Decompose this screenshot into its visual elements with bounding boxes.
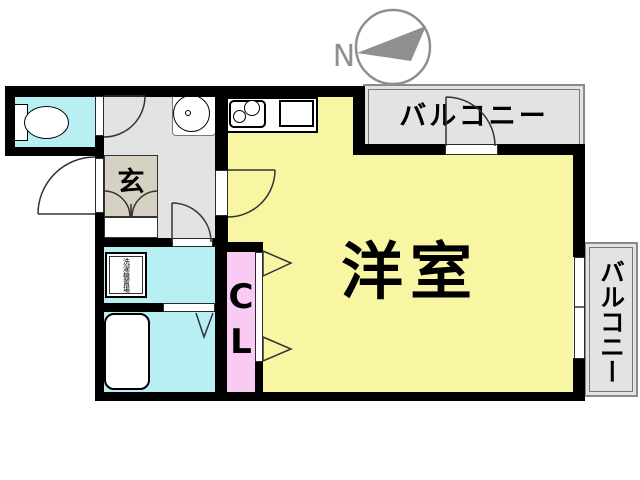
- entrance-step: [104, 217, 158, 238]
- wall-segment: [215, 247, 227, 392]
- wall-segment: [255, 362, 263, 392]
- closet-label-c: C: [227, 280, 255, 314]
- kitchen-sink-icon: [279, 100, 314, 127]
- balcony-door-opening: [445, 144, 498, 155]
- stove-burner-icon: [233, 110, 246, 123]
- stove-burner-icon: [244, 100, 260, 116]
- compass-north-label: N: [330, 40, 358, 74]
- closet-label-l: L: [227, 325, 255, 359]
- washing-machine-icon: 洗濯機置場: [105, 252, 147, 298]
- bathroom-door-opening: [163, 303, 215, 312]
- wall-segment: [5, 86, 364, 97]
- wall-segment: [5, 86, 15, 156]
- entrance-label: 玄: [104, 155, 158, 209]
- wall-segment: [498, 144, 585, 155]
- room-door-opening: [215, 170, 228, 216]
- wall-segment: [104, 238, 172, 247]
- balcony-right-label: バルコニー: [596, 246, 626, 396]
- washbasin-faucet-icon: [185, 110, 191, 116]
- floor-plan: 洗濯機置場 玄 洋室 C L バルコニー バルコニー N: [0, 0, 640, 480]
- washbasin-icon: [173, 95, 210, 132]
- wall-segment: [95, 213, 104, 247]
- washing-machine-label: 洗濯機置場: [123, 258, 130, 293]
- wall-segment: [363, 144, 445, 155]
- bathtub-icon: [104, 313, 150, 390]
- balcony-window: [574, 257, 585, 359]
- wall-segment: [573, 144, 585, 257]
- wall-segment: [215, 86, 228, 170]
- toilet-bowl-icon: [24, 106, 69, 139]
- front-door-opening: [95, 158, 104, 213]
- wall-segment: [95, 303, 163, 312]
- main-room-label: 洋室: [300, 237, 520, 307]
- closet-door-panel: [255, 252, 263, 362]
- balcony-top-label: バルコニー: [363, 86, 585, 146]
- compass-icon: [356, 10, 430, 84]
- wall-segment: [5, 147, 104, 156]
- front-door-swing: [38, 157, 95, 214]
- wall-segment: [95, 392, 585, 401]
- washroom-door-opening: [172, 238, 213, 247]
- wall-segment: [95, 86, 104, 96]
- wall-segment: [95, 247, 104, 401]
- toilet-door-opening: [95, 96, 104, 136]
- wall-segment: [215, 242, 263, 252]
- wall-segment: [95, 136, 104, 158]
